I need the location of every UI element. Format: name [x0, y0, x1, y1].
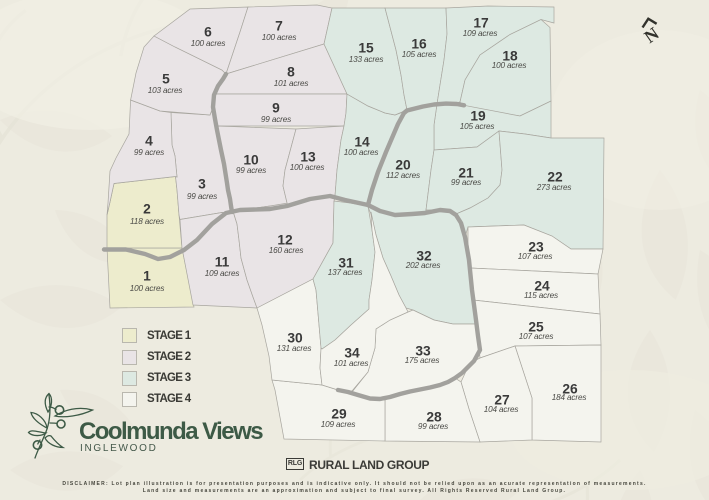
svg-text:100 acres: 100 acres	[191, 39, 226, 48]
svg-text:3: 3	[198, 177, 206, 192]
svg-text:100 acres: 100 acres	[492, 61, 527, 70]
svg-text:100 acres: 100 acres	[344, 148, 379, 157]
svg-text:109 acres: 109 acres	[321, 420, 356, 429]
svg-text:131 acres: 131 acres	[277, 344, 312, 353]
svg-text:100 acres: 100 acres	[130, 284, 165, 293]
svg-text:112 acres: 112 acres	[386, 171, 420, 180]
svg-text:99 acres: 99 acres	[134, 148, 164, 157]
svg-text:107 acres: 107 acres	[518, 252, 553, 261]
svg-text:101 acres: 101 acres	[334, 359, 369, 368]
svg-text:101 acres: 101 acres	[274, 79, 309, 88]
svg-text:202 acres: 202 acres	[405, 261, 441, 270]
svg-text:100 acres: 100 acres	[290, 163, 325, 172]
svg-text:137 acres: 137 acres	[328, 268, 363, 277]
svg-text:133 acres: 133 acres	[349, 55, 384, 64]
svg-text:103 acres: 103 acres	[148, 86, 183, 95]
svg-text:99 acres: 99 acres	[187, 192, 217, 201]
svg-text:105 acres: 105 acres	[460, 122, 495, 131]
svg-text:99 acres: 99 acres	[236, 166, 266, 175]
svg-text:1: 1	[143, 269, 151, 284]
svg-text:15: 15	[358, 41, 374, 56]
svg-text:11: 11	[215, 255, 230, 270]
svg-text:273 acres: 273 acres	[536, 183, 572, 192]
svg-text:2: 2	[143, 202, 151, 217]
svg-text:175 acres: 175 acres	[405, 356, 440, 365]
svg-text:109 acres: 109 acres	[463, 29, 498, 38]
svg-text:184 acres: 184 acres	[552, 393, 587, 402]
svg-text:160 acres: 160 acres	[269, 246, 304, 255]
svg-text:99 acres: 99 acres	[261, 115, 291, 124]
svg-text:7: 7	[275, 19, 283, 34]
svg-text:118 acres: 118 acres	[130, 217, 164, 226]
svg-text:100 acres: 100 acres	[262, 33, 297, 42]
svg-text:107 acres: 107 acres	[519, 332, 554, 341]
svg-text:8: 8	[287, 65, 295, 80]
svg-text:4: 4	[145, 134, 153, 149]
svg-text:6: 6	[204, 25, 212, 40]
svg-text:105 acres: 105 acres	[402, 50, 437, 59]
svg-text:99 acres: 99 acres	[418, 422, 448, 431]
svg-text:99 acres: 99 acres	[451, 178, 481, 187]
svg-text:104 acres: 104 acres	[484, 405, 519, 414]
svg-text:5: 5	[162, 72, 170, 87]
svg-text:109 acres: 109 acres	[205, 269, 240, 278]
svg-text:9: 9	[272, 101, 280, 116]
svg-text:115 acres: 115 acres	[524, 291, 558, 300]
